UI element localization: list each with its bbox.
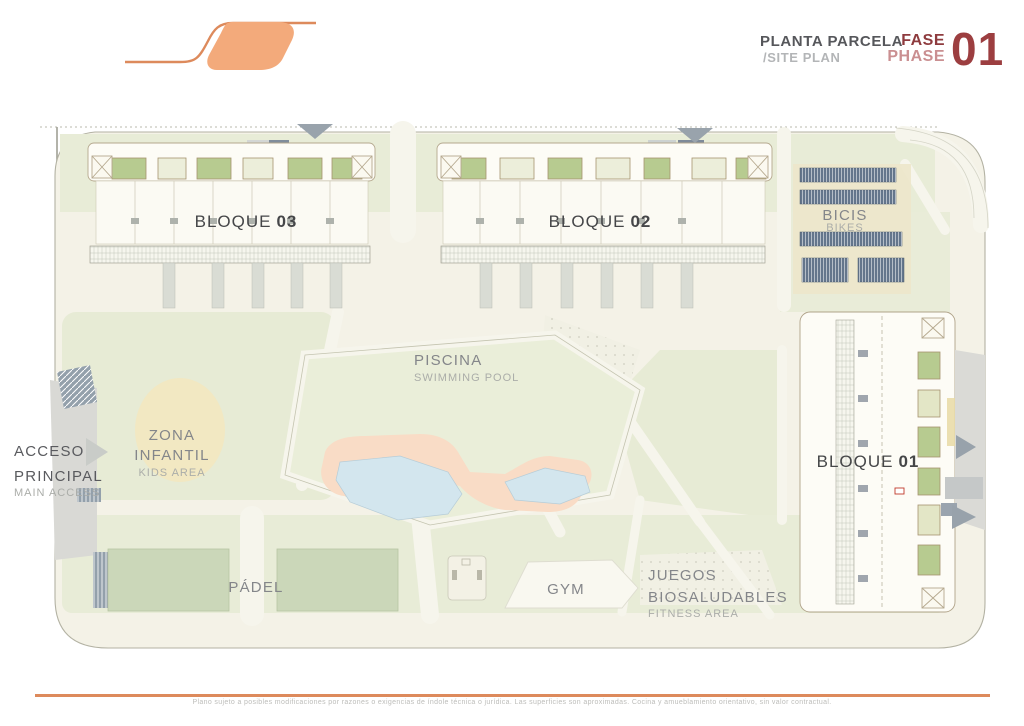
- juegos-label-line1: JUEGOS: [648, 567, 717, 584]
- plan-title-en: /SITE PLAN: [763, 50, 841, 65]
- piscina-label: PISCINA: [414, 352, 482, 369]
- bike-parking-area: BICIS BIKES: [793, 164, 911, 294]
- padel-label: PÁDEL: [228, 579, 283, 596]
- swimming-pool-label: SWIMMING POOL: [414, 372, 519, 384]
- footer-divider: [35, 694, 990, 697]
- acceso-label-line2: PRINCIPAL: [14, 468, 103, 485]
- infantil-label: INFANTIL: [134, 447, 209, 464]
- acceso-label-line1: ACCESO: [14, 443, 85, 460]
- site-plan-drawing: BLOQUE03: [0, 100, 1024, 690]
- gym-area: GYM: [448, 556, 638, 608]
- bloque-01-building: BLOQUE01: [800, 312, 955, 612]
- bloque-02-label: BLOQUE02: [549, 212, 652, 231]
- fitness-area-label: FITNESS AREA: [648, 608, 739, 620]
- juegos-label-line2: BIOSALUDABLES: [648, 589, 788, 606]
- gym-label: GYM: [547, 581, 585, 598]
- phase-label-en: PHASE: [862, 49, 945, 65]
- footer-disclaimer: Plano sujeto a posibles modificaciones p…: [0, 699, 1024, 706]
- kids-area-label: KIDS AREA: [138, 467, 205, 479]
- site-plan-page: PLANTA PARCELA /SITE PLAN FASE PHASE 01: [0, 0, 1024, 726]
- phase-number: 01: [951, 22, 1004, 76]
- bikes-label: BIKES: [826, 222, 863, 234]
- bloque-03-label: BLOQUE03: [195, 212, 298, 231]
- bloque-01-label: BLOQUE01: [817, 452, 920, 471]
- brand-logo: [120, 10, 330, 72]
- main-access-label: MAIN ACCESS: [14, 487, 100, 499]
- zona-label: ZONA: [149, 427, 195, 444]
- phase-label-es: FASE: [870, 33, 945, 49]
